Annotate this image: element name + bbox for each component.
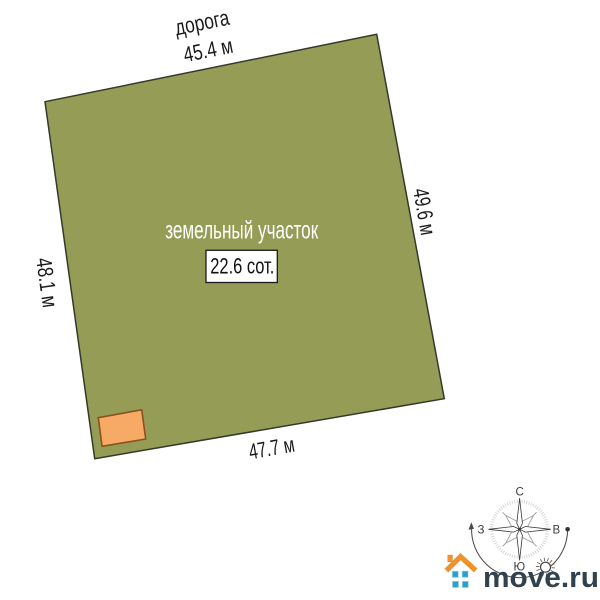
svg-text:земельный участок: земельный участок xyxy=(165,216,319,244)
svg-text:22.6 сот.: 22.6 сот. xyxy=(210,254,274,279)
svg-text:move.ru: move.ru xyxy=(483,562,599,594)
svg-text:З: З xyxy=(478,524,485,536)
svg-text:С: С xyxy=(515,487,523,499)
svg-text:В: В xyxy=(552,524,560,536)
